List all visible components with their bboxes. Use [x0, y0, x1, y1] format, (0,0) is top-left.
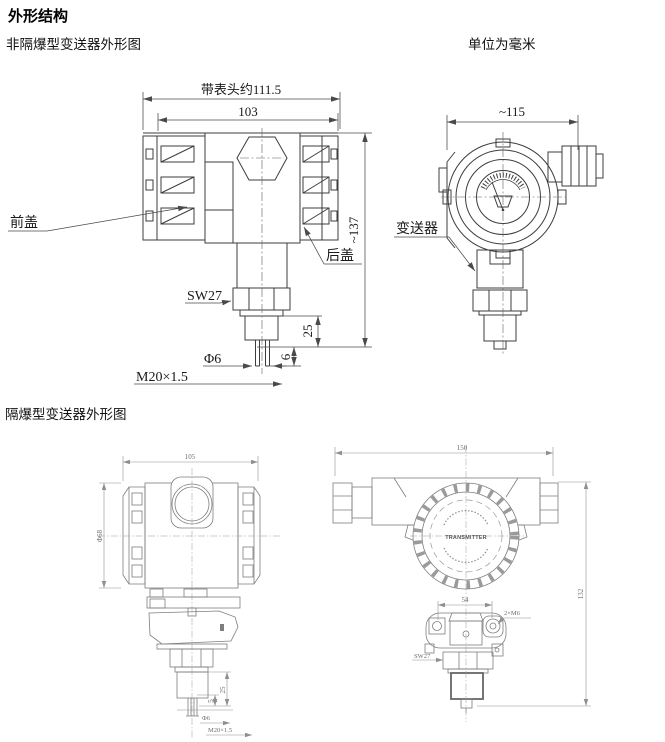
dim-probe-length-label: 6 [278, 353, 293, 360]
conduit-hex-left [333, 483, 352, 523]
dim-probe-dia-label: Φ6 [204, 352, 221, 367]
dim-height-label: 132 [577, 588, 585, 599]
dim-hole-spacing-label: 54 [462, 596, 470, 604]
probe-pins [186, 698, 199, 716]
body-outline [333, 446, 558, 722]
thread-cylinder [451, 673, 483, 699]
hex-nut-sw27 [443, 652, 493, 669]
dim-width-label: ~115 [499, 104, 525, 119]
holes-label: 2×M6 [504, 610, 521, 617]
dim-height-label: ~137 [346, 216, 361, 243]
dim-width-label: 150 [457, 444, 468, 452]
drawing-exproof-front: 105 Φ68 25 5 Φ6 M20×1.5 [96, 453, 282, 738]
dim-probe-length-label: 5 [207, 699, 215, 703]
drawing-nonexproof-front: 带表头约111.5 103 ~137 前盖 后盖 SW27 25 6 Φ6 M2… [8, 82, 372, 385]
front-cover-label: 前盖 [10, 214, 38, 231]
cover-text-label: TRANSMITTER [445, 535, 487, 541]
conduit-hex-right [540, 483, 558, 523]
dim-sensor-length-label: 25 [300, 325, 315, 338]
body-outline [439, 132, 603, 356]
hex-nut-sw27 [233, 288, 290, 310]
cable-gland [548, 146, 603, 186]
transmitter-label: 变送器 [396, 221, 438, 237]
thread-cylinder [177, 672, 208, 698]
hex-nut [473, 290, 527, 311]
hex-plug [237, 137, 287, 180]
wrench-size-label: SW27 [187, 289, 222, 304]
technical-drawings-canvas: 带表头约111.5 103 ~137 前盖 后盖 SW27 25 6 Φ6 M2… [0, 0, 665, 742]
dim-thread-label: M20×1.5 [136, 370, 188, 385]
dimension-lines [335, 447, 553, 476]
dim-thread-label: M20×1.5 [208, 727, 232, 734]
back-cover-label: 后盖 [326, 248, 354, 264]
probe-pins [256, 340, 270, 366]
wrench-size-label: SW27 [414, 653, 431, 660]
dim-width-with-head-label: 带表头约111.5 [201, 82, 281, 97]
drawing-nonexproof-top: ~115 变送器 [394, 104, 603, 356]
body-outline [98, 468, 282, 738]
manual-page: 外形结构 非隔爆型变送器外形图 单位为毫米 隔爆型变送器外形图 [0, 0, 665, 742]
dim-sensor-length-label: 25 [219, 686, 227, 694]
dim-width-label: 103 [238, 104, 258, 119]
thread-cylinder [245, 316, 278, 340]
dim-probe-dia-label: Φ6 [202, 715, 211, 722]
dim-body-dia-label: Φ68 [96, 529, 104, 542]
dim-width-label: 105 [185, 453, 196, 461]
hex-nut [170, 649, 213, 667]
drawing-exproof-top: TRANSMITTER 150 132 54 2×M6 SW27 [333, 444, 591, 722]
